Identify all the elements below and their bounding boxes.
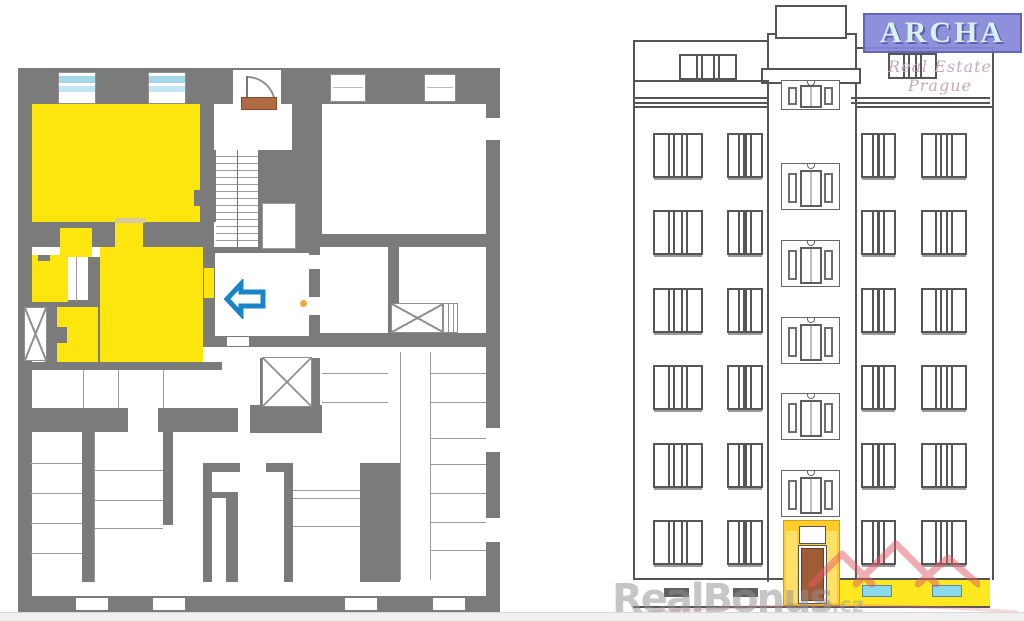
- facade-window: [653, 133, 703, 178]
- partition-line: [293, 498, 360, 499]
- roof-structure: [775, 5, 847, 39]
- wall: [18, 362, 222, 370]
- wall: [388, 463, 400, 582]
- facade-window: [861, 365, 896, 410]
- wall: [82, 432, 94, 582]
- facade-window: [921, 365, 967, 410]
- wall-opening: [153, 598, 185, 610]
- staircase-window: [781, 240, 840, 287]
- wall-opening: [309, 297, 320, 315]
- wall: [158, 408, 238, 432]
- cornice: [633, 97, 769, 99]
- logo-title: ARCHA: [880, 16, 1005, 50]
- wall: [250, 405, 322, 433]
- wall: [310, 104, 322, 234]
- apartment-room: [100, 247, 203, 362]
- apartment-entrance-door: [204, 268, 214, 298]
- facade-window: [861, 288, 896, 333]
- apartment-room: [32, 104, 200, 222]
- wall-opening: [309, 255, 320, 269]
- shaft-grille: [442, 303, 458, 333]
- wall: [284, 463, 293, 582]
- logo-subtitle: Real Estate Prague: [856, 57, 1024, 95]
- listing-image: ARCHA Real Estate Prague RealBonus.cz: [0, 0, 1024, 621]
- partition-line: [94, 432, 95, 582]
- partition-line: [94, 528, 163, 529]
- facade-window: [861, 443, 896, 488]
- partition-line: [430, 352, 431, 580]
- partition-line: [293, 490, 360, 491]
- facade-window: [653, 210, 703, 255]
- facade-window: [727, 365, 763, 410]
- wall: [226, 498, 238, 582]
- entrance-arrow-icon: [224, 279, 266, 319]
- plan-window: [58, 72, 96, 104]
- wall-opening: [240, 464, 266, 471]
- facade-window: [727, 133, 763, 178]
- entrance-door-sill: [241, 97, 277, 110]
- stair-center-line: [237, 150, 238, 247]
- facade-window: [653, 443, 703, 488]
- wall-opening: [486, 428, 500, 452]
- partition-line: [118, 370, 119, 408]
- apartment-room: [32, 255, 68, 302]
- apartment-door-opening: [60, 228, 92, 257]
- window-column: [653, 133, 703, 565]
- elevator-shaft: [24, 307, 47, 361]
- orange-marker-dot: [300, 300, 307, 307]
- facade-window: [921, 288, 967, 333]
- apartment-door-opening: [115, 223, 143, 249]
- facade-window: [921, 443, 967, 488]
- facade-window: [921, 210, 967, 255]
- staircase-window: [781, 393, 840, 440]
- wall: [194, 190, 202, 206]
- wall-opening: [76, 598, 108, 610]
- cornice: [851, 102, 990, 104]
- partition-line: [431, 438, 486, 439]
- partition-line: [431, 402, 486, 403]
- facade-window: [921, 133, 967, 178]
- attic-cornice: [633, 80, 769, 82]
- wall-opening: [433, 598, 465, 610]
- image-bottom-strip: [0, 612, 1024, 621]
- partition-line: [30, 553, 82, 554]
- wall: [310, 234, 500, 247]
- facade-window: [861, 133, 896, 178]
- partition-line: [400, 352, 401, 580]
- facade-window: [727, 520, 763, 565]
- partition-line: [431, 493, 486, 494]
- archa-logo: ARCHA: [863, 13, 1022, 53]
- elevator-shaft: [262, 357, 312, 407]
- partition-line: [30, 463, 82, 464]
- plan-window: [148, 72, 186, 104]
- facade-window: [727, 210, 763, 255]
- plan-window: [424, 74, 456, 102]
- facade-window: [653, 288, 703, 333]
- wall: [203, 463, 212, 582]
- partition-line: [431, 373, 486, 374]
- staircase-window: [781, 317, 840, 364]
- window-column: [861, 133, 896, 565]
- cornice: [851, 97, 990, 99]
- staircase-window-column: [781, 163, 840, 517]
- facade-window: [653, 520, 703, 565]
- partition-line: [30, 523, 82, 524]
- partition-line: [431, 522, 486, 523]
- wall: [30, 408, 128, 432]
- partition-line: [322, 373, 388, 374]
- wall-opening: [486, 118, 500, 140]
- partition-line: [83, 370, 84, 408]
- staircase-window: [781, 470, 840, 517]
- window-column: [727, 133, 763, 565]
- partition-line: [163, 370, 164, 408]
- stair-landing: [262, 203, 296, 249]
- plan-window: [330, 74, 366, 102]
- window-column: [921, 133, 967, 565]
- facade-window: [727, 443, 763, 488]
- wall: [38, 255, 50, 261]
- facade-window: [653, 365, 703, 410]
- staircase-window: [781, 80, 840, 110]
- partition-line: [94, 470, 163, 471]
- vestibule: [214, 104, 292, 150]
- wall-opening: [486, 518, 500, 542]
- wall-opening: [345, 598, 377, 610]
- wall: [57, 327, 67, 343]
- facade-window: [679, 54, 737, 80]
- partition-line: [322, 402, 388, 403]
- cornice: [633, 102, 769, 104]
- partition-line: [76, 257, 77, 302]
- partition-line: [431, 464, 486, 465]
- facade-window: [727, 288, 763, 333]
- facade-window: [861, 210, 896, 255]
- wall: [163, 432, 173, 525]
- wall: [315, 333, 500, 347]
- staircase-window: [781, 163, 840, 210]
- partition-line: [30, 493, 82, 494]
- partition-line: [431, 550, 486, 551]
- wall-opening: [227, 337, 249, 346]
- ventilation-shaft: [391, 303, 444, 333]
- partition-line: [293, 526, 360, 527]
- partition-line: [94, 500, 163, 501]
